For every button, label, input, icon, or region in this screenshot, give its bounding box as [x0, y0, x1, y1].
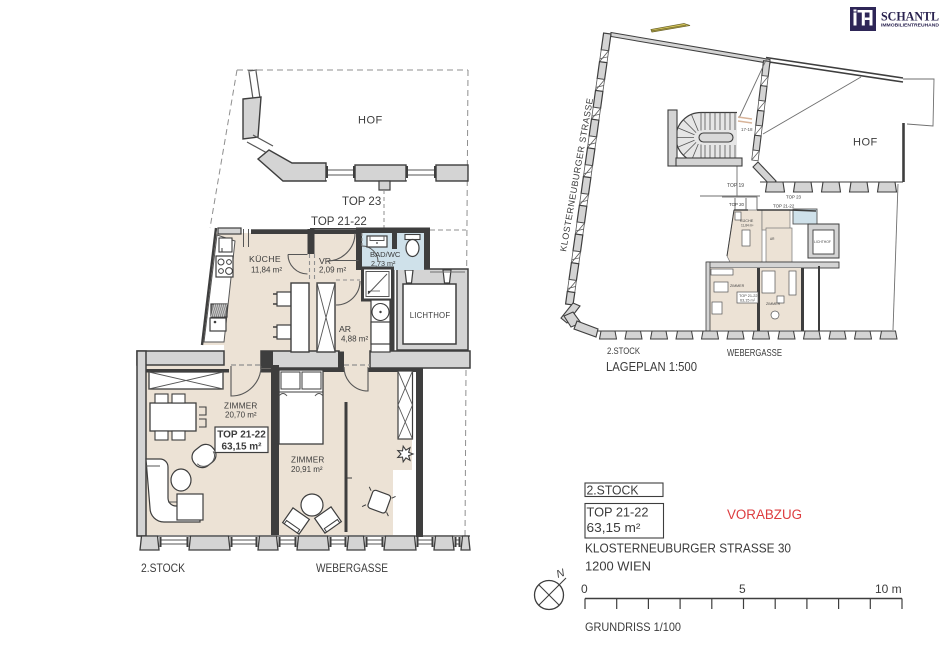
svg-text:63,15 m²: 63,15 m²	[221, 442, 262, 453]
svg-text:TOP 21-22: TOP 21-22	[217, 430, 266, 441]
svg-text:1200 WIEN: 1200 WIEN	[585, 560, 651, 574]
svg-text:AR: AR	[770, 237, 775, 241]
svg-text:TOP 21-22: TOP 21-22	[739, 294, 757, 298]
svg-text:63,15 m²: 63,15 m²	[587, 520, 642, 535]
svg-text:SCHANTL: SCHANTL	[881, 10, 939, 24]
svg-text:17-18: 17-18	[741, 127, 753, 132]
svg-text:20,70 m²: 20,70 m²	[225, 411, 257, 420]
svg-text:TOP 21-22: TOP 21-22	[587, 505, 649, 520]
svg-text:AR: AR	[339, 324, 351, 334]
svg-text:TOP 21-22: TOP 21-22	[773, 204, 795, 209]
svg-text:LICHTHOF: LICHTHOF	[814, 240, 831, 244]
svg-text:VR: VR	[319, 256, 331, 266]
svg-text:ZIMMER: ZIMMER	[291, 456, 325, 465]
svg-text:2,09 m²: 2,09 m²	[319, 266, 346, 275]
svg-text:HOF: HOF	[853, 137, 878, 149]
svg-text:ZIMMER: ZIMMER	[766, 302, 781, 306]
svg-text:TOP 23: TOP 23	[342, 196, 381, 208]
svg-text:11,84 m²: 11,84 m²	[741, 224, 753, 228]
svg-text:20,91 m²: 20,91 m²	[291, 465, 323, 474]
svg-text:TOP 23: TOP 23	[786, 195, 802, 200]
svg-text:2.STOCK: 2.STOCK	[607, 346, 641, 357]
svg-text:TOP 21-22: TOP 21-22	[311, 216, 367, 228]
svg-text:KÜCHE: KÜCHE	[740, 219, 754, 223]
svg-text:IMMOBILIENTREUHAND: IMMOBILIENTREUHAND	[881, 23, 939, 28]
svg-text:63,15 m²: 63,15 m²	[740, 299, 756, 303]
svg-text:GRUNDRISS 1/100: GRUNDRISS 1/100	[585, 620, 681, 634]
svg-text:LAGEPLAN 1:500: LAGEPLAN 1:500	[606, 360, 697, 374]
svg-text:WEBERGASSE: WEBERGASSE	[727, 348, 782, 359]
svg-text:11,84 m²: 11,84 m²	[251, 266, 282, 275]
svg-text:TOP 19: TOP 19	[727, 183, 744, 189]
svg-text:LICHTHOF: LICHTHOF	[410, 311, 451, 320]
svg-text:ZIMMER: ZIMMER	[224, 402, 258, 411]
svg-text:10 m: 10 m	[875, 582, 902, 596]
svg-text:5: 5	[739, 582, 746, 596]
svg-text:0: 0	[581, 582, 588, 596]
svg-text:4,88 m²: 4,88 m²	[341, 335, 368, 344]
svg-text:KÜCHE: KÜCHE	[249, 254, 281, 264]
svg-text:2.STOCK: 2.STOCK	[141, 563, 185, 575]
svg-text:2.STOCK: 2.STOCK	[587, 484, 640, 498]
svg-text:HOF: HOF	[358, 115, 383, 127]
svg-text:KLOSTERNEUBURGER STRASSE 30: KLOSTERNEUBURGER STRASSE 30	[585, 542, 791, 556]
svg-text:ZIMMER: ZIMMER	[730, 284, 745, 288]
svg-text:TOP 20: TOP 20	[729, 202, 745, 207]
svg-text:BAD/WC: BAD/WC	[370, 250, 401, 259]
svg-text:VORABZUG: VORABZUG	[727, 507, 802, 522]
svg-text:WEBERGASSE: WEBERGASSE	[316, 563, 388, 575]
svg-text:2,73 m²: 2,73 m²	[371, 259, 396, 268]
